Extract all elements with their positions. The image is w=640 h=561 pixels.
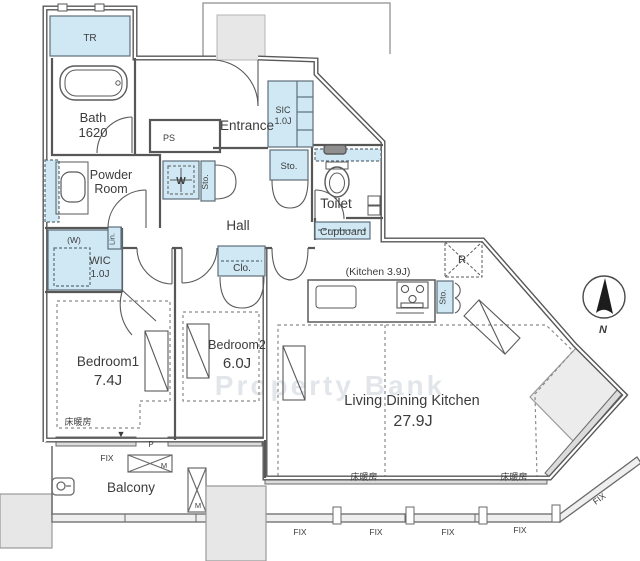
label-fix-2: FIX [369, 527, 383, 537]
washbasin [61, 172, 85, 202]
balcony-railing-diagonal [560, 457, 640, 522]
label-cupboard: Cupboard [320, 226, 366, 238]
label-entrance: Entrance [220, 118, 274, 133]
label-bedroom1: Bedroom1 [77, 354, 139, 369]
label-floorheat-b1: 床暖房 [64, 416, 91, 427]
label-entrance-sto: Sto. [281, 161, 298, 172]
entrance-door [214, 60, 258, 106]
floorplan-drawing: Property Bank [0, 0, 640, 561]
label-wic: WIC [89, 255, 110, 267]
label-wic-size: 1.0J [91, 269, 110, 280]
ldk-doors [272, 248, 308, 280]
label-washer: W [176, 176, 186, 187]
label-bedroom2-size: 6.0J [223, 355, 251, 372]
powder-storage-doors [215, 165, 236, 199]
label-fix-bedroom: FIX [100, 453, 114, 463]
toilet-tank [324, 145, 346, 154]
compass: N [583, 276, 625, 336]
label-washer-alt: (W) [67, 235, 81, 245]
kitchen-storage-doors [455, 283, 460, 313]
down-marker: ▼ [117, 429, 126, 439]
label-powder-sto: Sto. [200, 174, 210, 189]
faucet-icon [52, 478, 74, 495]
label-powder-1: Powder [90, 168, 132, 182]
label-bath-size: 1620 [79, 125, 108, 140]
label-kitchen: (Kitchen 3.9J) [346, 266, 411, 278]
label-balcony: Balcony [107, 480, 155, 495]
label-ldk-size: 27.9J [393, 413, 432, 430]
outer-walls [45, 4, 625, 478]
label-toilet: Toilet [320, 196, 352, 211]
label-tr: TR [83, 33, 96, 44]
wic-door [120, 292, 132, 335]
label-hall: Hall [226, 218, 249, 233]
label-ldk: Living Dining Kitchen [344, 393, 479, 409]
label-ps: PS [163, 133, 175, 143]
bedroom1-door [137, 248, 172, 284]
bathtub [60, 66, 127, 100]
label-sic: SIC [275, 105, 291, 115]
compass-north-label: N [599, 324, 608, 336]
closet-doors [220, 277, 264, 308]
label-fridge: R [458, 254, 466, 266]
kitchen-sink [316, 286, 356, 308]
label-m-2: M [195, 501, 201, 510]
label-p: P [148, 440, 153, 449]
label-m-1: M [161, 461, 167, 470]
label-fix-1: FIX [293, 527, 307, 537]
label-bedroom1-size: 7.4J [94, 372, 122, 389]
stove [397, 282, 428, 308]
label-fix-3: FIX [441, 527, 455, 537]
label-powder-2: Room [94, 182, 127, 196]
label-lin: Lin. [108, 233, 117, 245]
label-fix-4: FIX [513, 525, 527, 535]
entry-porch [217, 15, 265, 60]
label-kitchen-sto: Sto. [438, 289, 448, 304]
label-floorheat-ldk-left: 床暖房 [350, 471, 377, 482]
adjacent-block [0, 494, 52, 548]
label-floorheat-ldk-right: 床暖房 [500, 471, 527, 482]
floorplan: Property Bank [0, 0, 640, 561]
label-clo: Clo. [233, 263, 251, 274]
pillar [206, 486, 266, 561]
linen-cabinet [45, 160, 59, 222]
ps-box [150, 120, 220, 152]
entrance-storage-doors [272, 180, 308, 208]
label-sic-size: 1.0J [274, 116, 291, 126]
bedroom2-door [182, 248, 217, 283]
label-bath: Bath [80, 110, 107, 125]
label-bedroom2: Bedroom2 [208, 338, 266, 352]
